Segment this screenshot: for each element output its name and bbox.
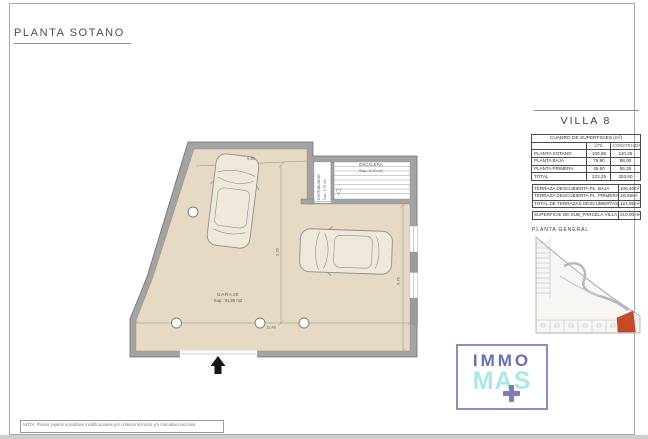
immo-mas-logo: IMMO MAS bbox=[456, 344, 548, 410]
table-row: TOTAL DE TERRAZAS DESCUBIERTAS 124,95m² bbox=[532, 200, 640, 208]
stairs-area-label: Sup.: 6,20 m2 bbox=[359, 169, 383, 173]
note-box: NOTA: Planos sujetos a posibles modifica… bbox=[20, 420, 224, 433]
dim-right-height: 6,76 bbox=[396, 276, 401, 285]
row-label: TOTAL bbox=[532, 173, 587, 181]
row-value: 219,00 m² bbox=[618, 211, 640, 219]
row-construida: 110,25 bbox=[611, 150, 640, 158]
row-value: 18,55m² bbox=[618, 192, 640, 200]
right-wall-pilaster-1 bbox=[410, 253, 418, 272]
row-label: TOTAL DE TERRAZAS DESCUBIERTAS bbox=[532, 200, 618, 208]
row-value: 124,95m² bbox=[618, 200, 640, 208]
logo-plus-icon bbox=[509, 385, 514, 402]
surfaces-col-util: ÚTIL bbox=[587, 142, 611, 149]
row-util: 45,50 bbox=[587, 165, 611, 173]
table-row: SUPERFICIE DE SUB_PARCELA VILLA 8 219,00… bbox=[532, 211, 640, 219]
table-row-total: TOTAL 223,25 253,60 bbox=[532, 173, 640, 181]
stairs-room-label: ESCALERA bbox=[359, 162, 382, 167]
info-panel: VILLA 8 CUADRO DE SUPERFICIES (m²) ÚTIL … bbox=[530, 110, 642, 343]
hall-room-label: DISTRIBUIDOR bbox=[317, 174, 321, 200]
table-row: PLANTA SOTANO 100,85 110,25 bbox=[532, 150, 640, 158]
table-row: PLANTA BAJA 76,90 88,00 bbox=[532, 157, 640, 165]
right-wall-pilaster-2 bbox=[410, 298, 418, 325]
hall-stub-wall bbox=[301, 199, 314, 204]
panel-divider-line bbox=[534, 110, 639, 111]
surfaces-table-title: CUADRO DE SUPERFICIES (m²) bbox=[532, 135, 640, 143]
villa-title: VILLA 8 bbox=[530, 115, 642, 127]
entrance-arrow-icon bbox=[211, 356, 226, 374]
terraces-table: TERRAZA DESCUBIERTA PL. BAJA 106,40m² TE… bbox=[532, 184, 641, 208]
row-util: 223,25 bbox=[587, 173, 611, 181]
table-row: TERRAZA DESCUBIERTA PL. PRIMERA 18,55m² bbox=[532, 192, 640, 200]
dim-bottom-width: 12,40 bbox=[266, 325, 277, 330]
garage-area-label: Sup.: 91,95 m2 bbox=[214, 298, 243, 303]
row-label: SUPERFICIE DE SUB_PARCELA VILLA 8 bbox=[532, 211, 618, 219]
row-value: 106,40m² bbox=[618, 185, 640, 193]
dim-inner-height: 9,29 bbox=[275, 247, 280, 256]
row-construida: 253,60 bbox=[611, 173, 640, 181]
row-construida: 88,00 bbox=[611, 157, 640, 165]
table-row: TERRAZA DESCUBIERTA PL. BAJA 106,40m² bbox=[532, 185, 640, 193]
row-util: 100,85 bbox=[587, 150, 611, 158]
hall-area-label: Sup.: 2,70 m2 bbox=[323, 179, 327, 200]
surfaces-col-empty bbox=[532, 142, 587, 149]
logo-mas-text: MAS bbox=[458, 370, 546, 393]
row-label: PLANTA BAJA bbox=[532, 157, 587, 165]
table-row: PLANTA PRIMERA 45,50 55,35 bbox=[532, 165, 640, 173]
row-label: TERRAZA DESCUBIERTA PL. PRIMERA bbox=[532, 192, 618, 200]
row-label: PLANTA SOTANO bbox=[532, 150, 587, 158]
site-plan-thumbnail bbox=[530, 236, 642, 338]
surfaces-col-construida: CONSTRUIDA bbox=[611, 142, 640, 149]
car-2-drawing bbox=[299, 225, 393, 277]
site-plan-title: PLANTA GENERAL bbox=[532, 227, 642, 233]
dim-top-width: 5,90 bbox=[247, 156, 256, 161]
surfaces-table: CUADRO DE SUPERFICIES (m²) ÚTIL CONSTRUI… bbox=[531, 134, 640, 181]
row-util: 76,90 bbox=[587, 157, 611, 165]
row-label: PLANTA PRIMERA bbox=[532, 165, 587, 173]
row-label: TERRAZA DESCUBIERTA PL. BAJA bbox=[532, 185, 618, 193]
parcel-surface-table: SUPERFICIE DE SUB_PARCELA VILLA 8 219,00… bbox=[532, 211, 641, 220]
stair-hall-divider-wall bbox=[331, 162, 334, 199]
row-construida: 55,35 bbox=[611, 165, 640, 173]
plan-sheet: PLANTA SOTANO bbox=[0, 0, 648, 439]
